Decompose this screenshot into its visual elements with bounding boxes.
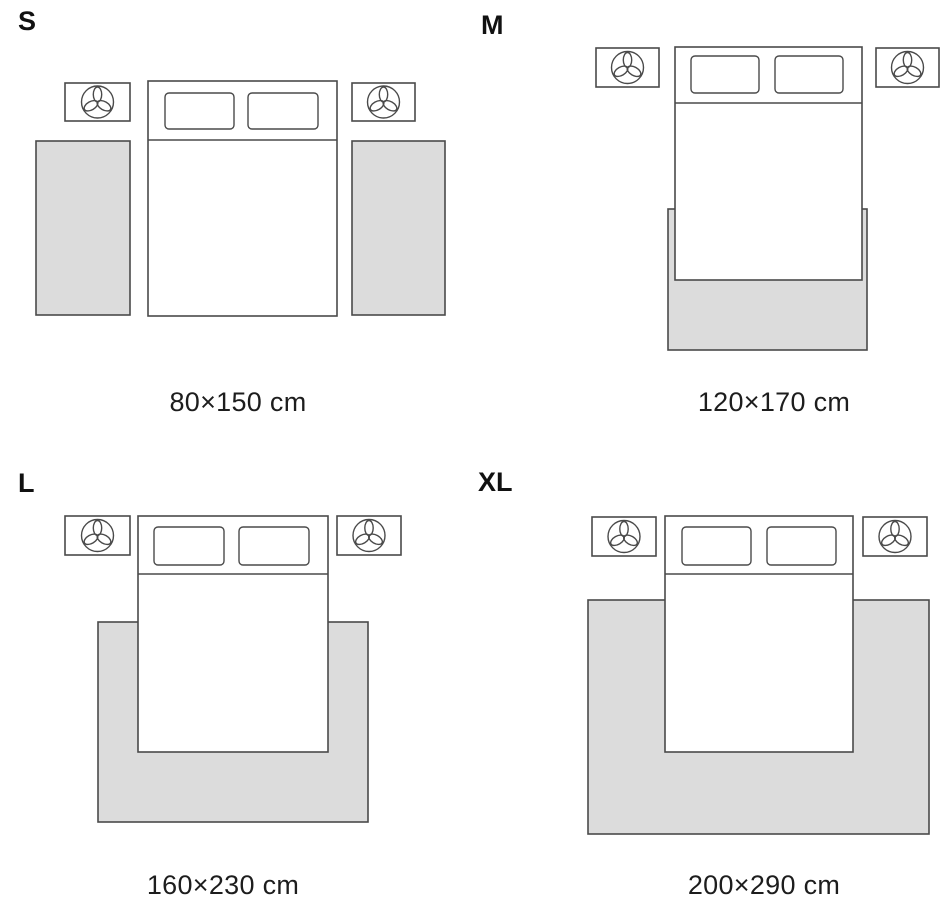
size-label: L xyxy=(18,468,35,498)
size-option-s: S 80×150 cm xyxy=(18,6,445,417)
size-option-xl: XL 200×290 cm xyxy=(478,467,929,900)
rug-runner-right xyxy=(352,141,445,315)
pillow-left xyxy=(682,527,751,565)
pillow-right xyxy=(775,56,843,93)
size-label: M xyxy=(481,10,504,40)
size-caption: 160×230 cm xyxy=(147,870,299,900)
pillow-left xyxy=(691,56,759,93)
pillow-left xyxy=(165,93,234,129)
size-caption: 80×150 cm xyxy=(169,387,306,417)
size-option-l: L 160×230 cm xyxy=(18,468,401,900)
size-caption: 120×170 cm xyxy=(698,387,850,417)
pillow-right xyxy=(239,527,309,565)
size-option-m: M 120×170 cm xyxy=(481,10,939,417)
pillow-left xyxy=(154,527,224,565)
size-caption: 200×290 cm xyxy=(688,870,840,900)
rug-runner-left xyxy=(36,141,130,315)
pillow-right xyxy=(767,527,836,565)
size-label: S xyxy=(18,6,36,36)
rug-size-guide: S 80×150 cm M 120×170 cm xyxy=(0,0,950,900)
size-label: XL xyxy=(478,467,513,497)
size-guide-illustration: S 80×150 cm M 120×170 cm xyxy=(0,0,950,900)
pillow-right xyxy=(248,93,318,129)
